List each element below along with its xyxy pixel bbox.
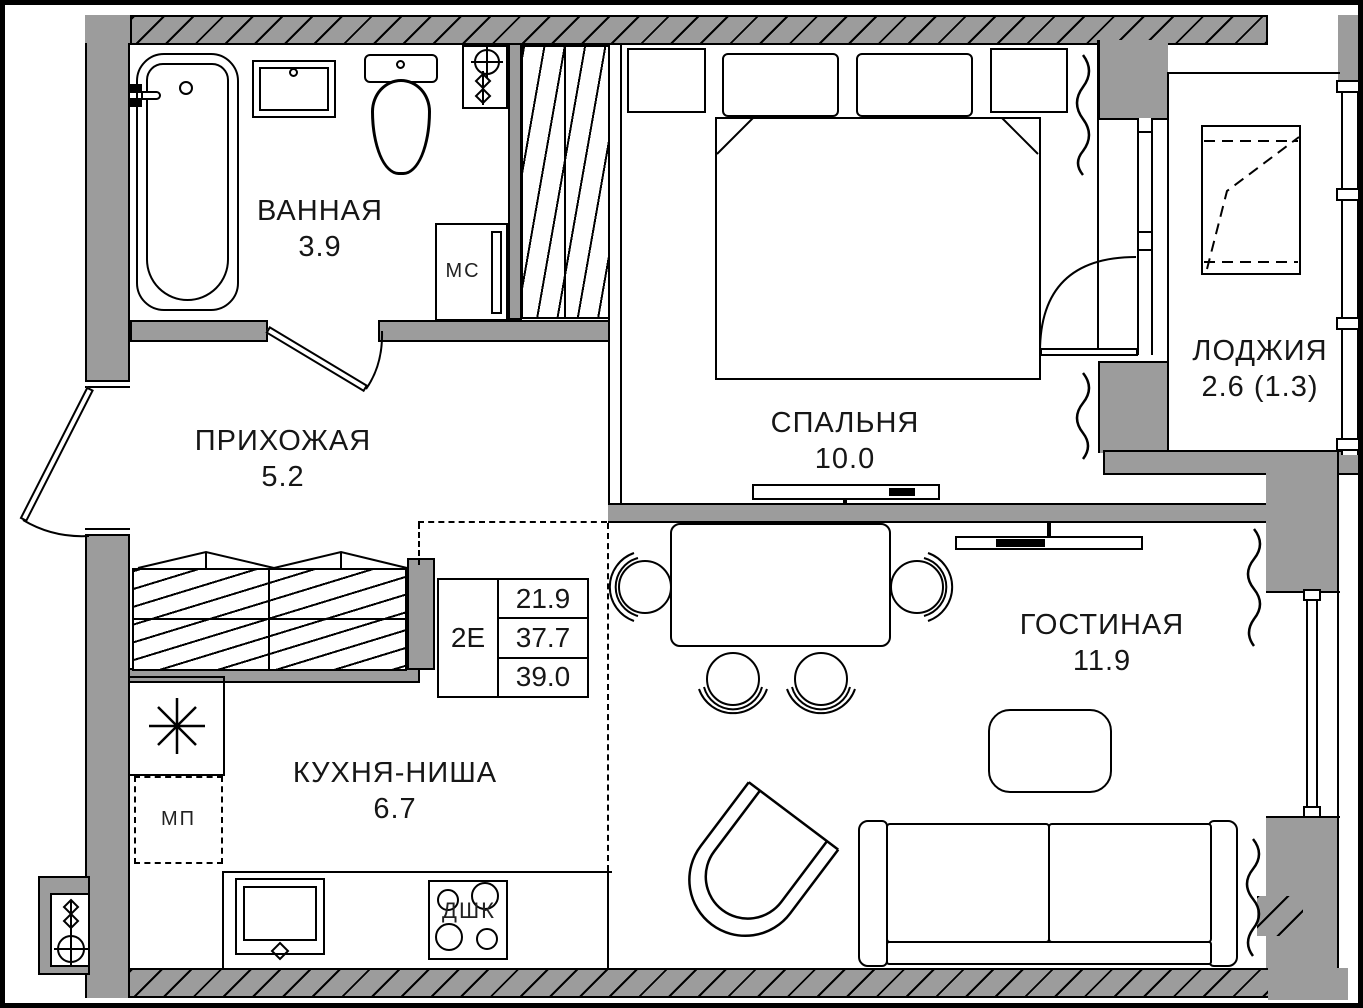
wall-hatch-block xyxy=(1257,896,1303,936)
wall xyxy=(1338,15,1360,80)
room-label-bedroom: СПАЛЬНЯ xyxy=(763,407,927,439)
kitchen-boundary-dashed xyxy=(418,521,607,523)
unit-area-value: 21.9 xyxy=(499,580,587,617)
loggia-glazing xyxy=(1341,80,1359,455)
unit-info-table: 2Е 21.9 37.7 39.0 xyxy=(437,578,589,698)
wall xyxy=(1266,818,1338,968)
wall xyxy=(608,45,622,505)
wall xyxy=(1268,968,1348,1000)
wall xyxy=(1098,40,1168,120)
room-label-loggia: ЛОДЖИЯ xyxy=(1185,335,1335,367)
wall-line xyxy=(1097,40,1099,352)
wardrobe-divider xyxy=(564,47,566,317)
bathtub-drain xyxy=(179,81,193,95)
faucet-spout xyxy=(141,91,161,100)
armchair xyxy=(667,782,838,958)
bathroom-door-leaf xyxy=(265,326,368,392)
glazing-mullion xyxy=(1336,80,1363,93)
sofa-front xyxy=(886,941,1212,965)
room-area-bathroom: 3.9 xyxy=(235,231,405,263)
label-dshk: ДШК xyxy=(433,898,505,924)
wall xyxy=(85,536,130,998)
radiator-icon xyxy=(1077,373,1089,459)
balcony-window-frame xyxy=(1137,118,1153,355)
sofa-cushion xyxy=(1048,823,1212,943)
radiator-icon xyxy=(1077,55,1089,175)
window-frame-end xyxy=(1303,589,1321,601)
nightstand xyxy=(990,48,1068,113)
sofa-armrest xyxy=(1208,820,1238,967)
label-mp: МП xyxy=(134,805,223,833)
tv-living xyxy=(955,536,1143,550)
label-ms: МС xyxy=(435,258,491,284)
dining-chair-seat xyxy=(890,560,944,614)
kitchen-boundary-dashed xyxy=(418,523,420,565)
dining-chair-seat xyxy=(618,560,672,614)
frame-tick xyxy=(1137,249,1153,251)
pillow xyxy=(722,53,839,117)
wall xyxy=(608,503,1268,523)
room-area-living: 11.9 xyxy=(1018,645,1186,677)
coffee-table xyxy=(988,709,1112,793)
wall xyxy=(1103,450,1363,475)
kitchen-boundary-dashed xyxy=(607,523,609,871)
room-area-kitchen: 6.7 xyxy=(285,793,505,825)
dining-chair-seat xyxy=(794,652,848,706)
counter-edge xyxy=(607,873,609,968)
room-label-bathroom: ВАННАЯ xyxy=(235,195,405,227)
radiator-icon xyxy=(1248,529,1260,646)
plumbing-shaft xyxy=(50,893,90,967)
frame-tick xyxy=(1137,131,1153,133)
counter-edge xyxy=(222,871,612,873)
entrance-door-leaf xyxy=(20,387,94,523)
wall xyxy=(508,45,522,320)
fridge-spot xyxy=(130,676,225,776)
floor-plan: ВАННАЯ 3.9 ПРИХОЖАЯ 5.2 СПАЛЬНЯ 10.0 ЛОД… xyxy=(0,0,1363,1008)
toilet-bowl xyxy=(371,79,431,175)
loggia-wall-line xyxy=(1167,72,1340,74)
nightstand xyxy=(627,48,706,113)
unit-type: 2Е xyxy=(439,580,499,696)
room-area-hallway: 5.2 xyxy=(188,461,378,493)
room-area-loggia: 2.6 (1.3) xyxy=(1185,371,1335,403)
tv-bedroom-detail xyxy=(889,488,915,496)
balcony-door-arc xyxy=(1040,257,1136,352)
toilet-button xyxy=(396,60,405,69)
glazing-mullion xyxy=(1336,188,1363,201)
room-label-kitchen: КУХНЯ-НИША xyxy=(285,757,505,789)
entrance-door-arc xyxy=(23,520,89,536)
balcony-door-leaf xyxy=(1040,348,1138,356)
glazing-mullion xyxy=(1336,438,1363,451)
wardrobe-divider xyxy=(268,570,270,669)
room-label-living: ГОСТИНАЯ xyxy=(1018,609,1186,641)
glazing-mullion xyxy=(1336,317,1363,330)
pillow xyxy=(856,53,973,117)
bed xyxy=(715,117,1041,380)
wall xyxy=(407,558,435,670)
exterior-wall-bottom xyxy=(130,968,1272,998)
loggia-wall-line xyxy=(1167,72,1169,452)
washbasin-tap xyxy=(289,68,298,77)
sofa-cushion xyxy=(886,823,1050,943)
room-label-hallway: ПРИХОЖАЯ xyxy=(188,425,378,457)
dining-table xyxy=(670,523,891,647)
dining-chair-seat xyxy=(706,652,760,706)
wall xyxy=(1266,473,1338,593)
loggia-cabinet xyxy=(1201,125,1301,275)
door-jamb xyxy=(85,380,130,388)
sofa-armrest xyxy=(858,820,888,967)
counter-edge xyxy=(222,873,224,968)
plumbing-shaft xyxy=(462,45,508,109)
tv-living-detail xyxy=(996,539,1045,547)
wardrobe-door-symbol xyxy=(138,552,407,568)
unit-area-value: 37.7 xyxy=(499,617,587,656)
wall xyxy=(85,15,130,45)
wall xyxy=(130,320,268,342)
wall xyxy=(85,43,130,380)
cabinet-ms-door xyxy=(491,231,502,314)
built-in-wardrobe xyxy=(521,45,611,319)
unit-area-value: 39.0 xyxy=(499,657,587,696)
wall-line xyxy=(1337,448,1339,968)
wall xyxy=(1098,361,1168,453)
window-frame-end xyxy=(1303,806,1321,818)
window-frame xyxy=(1306,589,1318,818)
kitchen-sink-basin xyxy=(243,886,317,941)
room-area-bedroom: 10.0 xyxy=(763,443,927,475)
frame-tick xyxy=(1137,231,1153,233)
wall xyxy=(378,320,618,342)
door-jamb xyxy=(85,528,130,536)
